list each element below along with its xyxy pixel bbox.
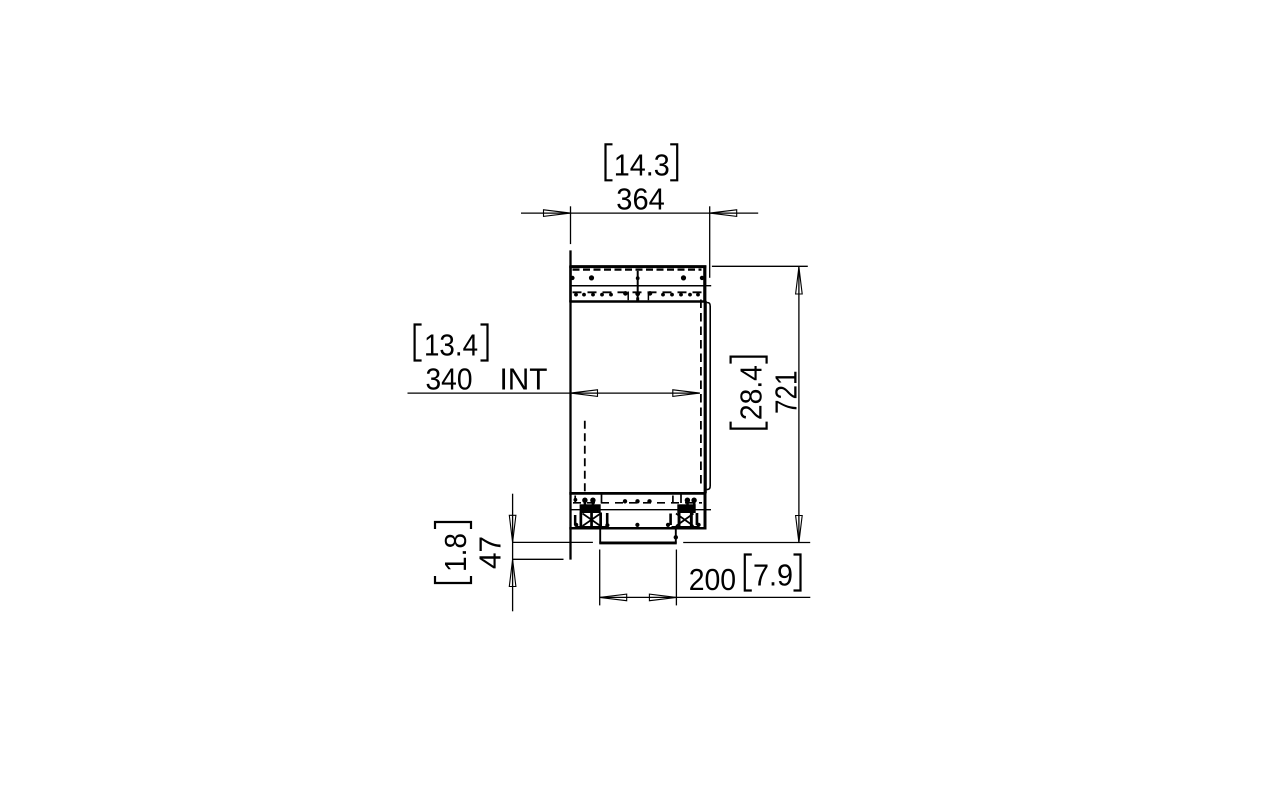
svg-text:200: 200	[689, 562, 736, 597]
svg-text:721: 721	[769, 371, 804, 415]
svg-text:28.4: 28.4	[734, 365, 769, 420]
svg-text:47: 47	[472, 536, 507, 569]
svg-text:14.3: 14.3	[614, 148, 670, 183]
svg-text:340: 340	[426, 362, 473, 397]
svg-text:7.9: 7.9	[753, 558, 793, 593]
svg-text:1.8: 1.8	[438, 533, 473, 572]
svg-text:364: 364	[616, 182, 665, 217]
svg-text:INT: INT	[500, 362, 548, 397]
svg-text:13.4: 13.4	[424, 328, 478, 363]
